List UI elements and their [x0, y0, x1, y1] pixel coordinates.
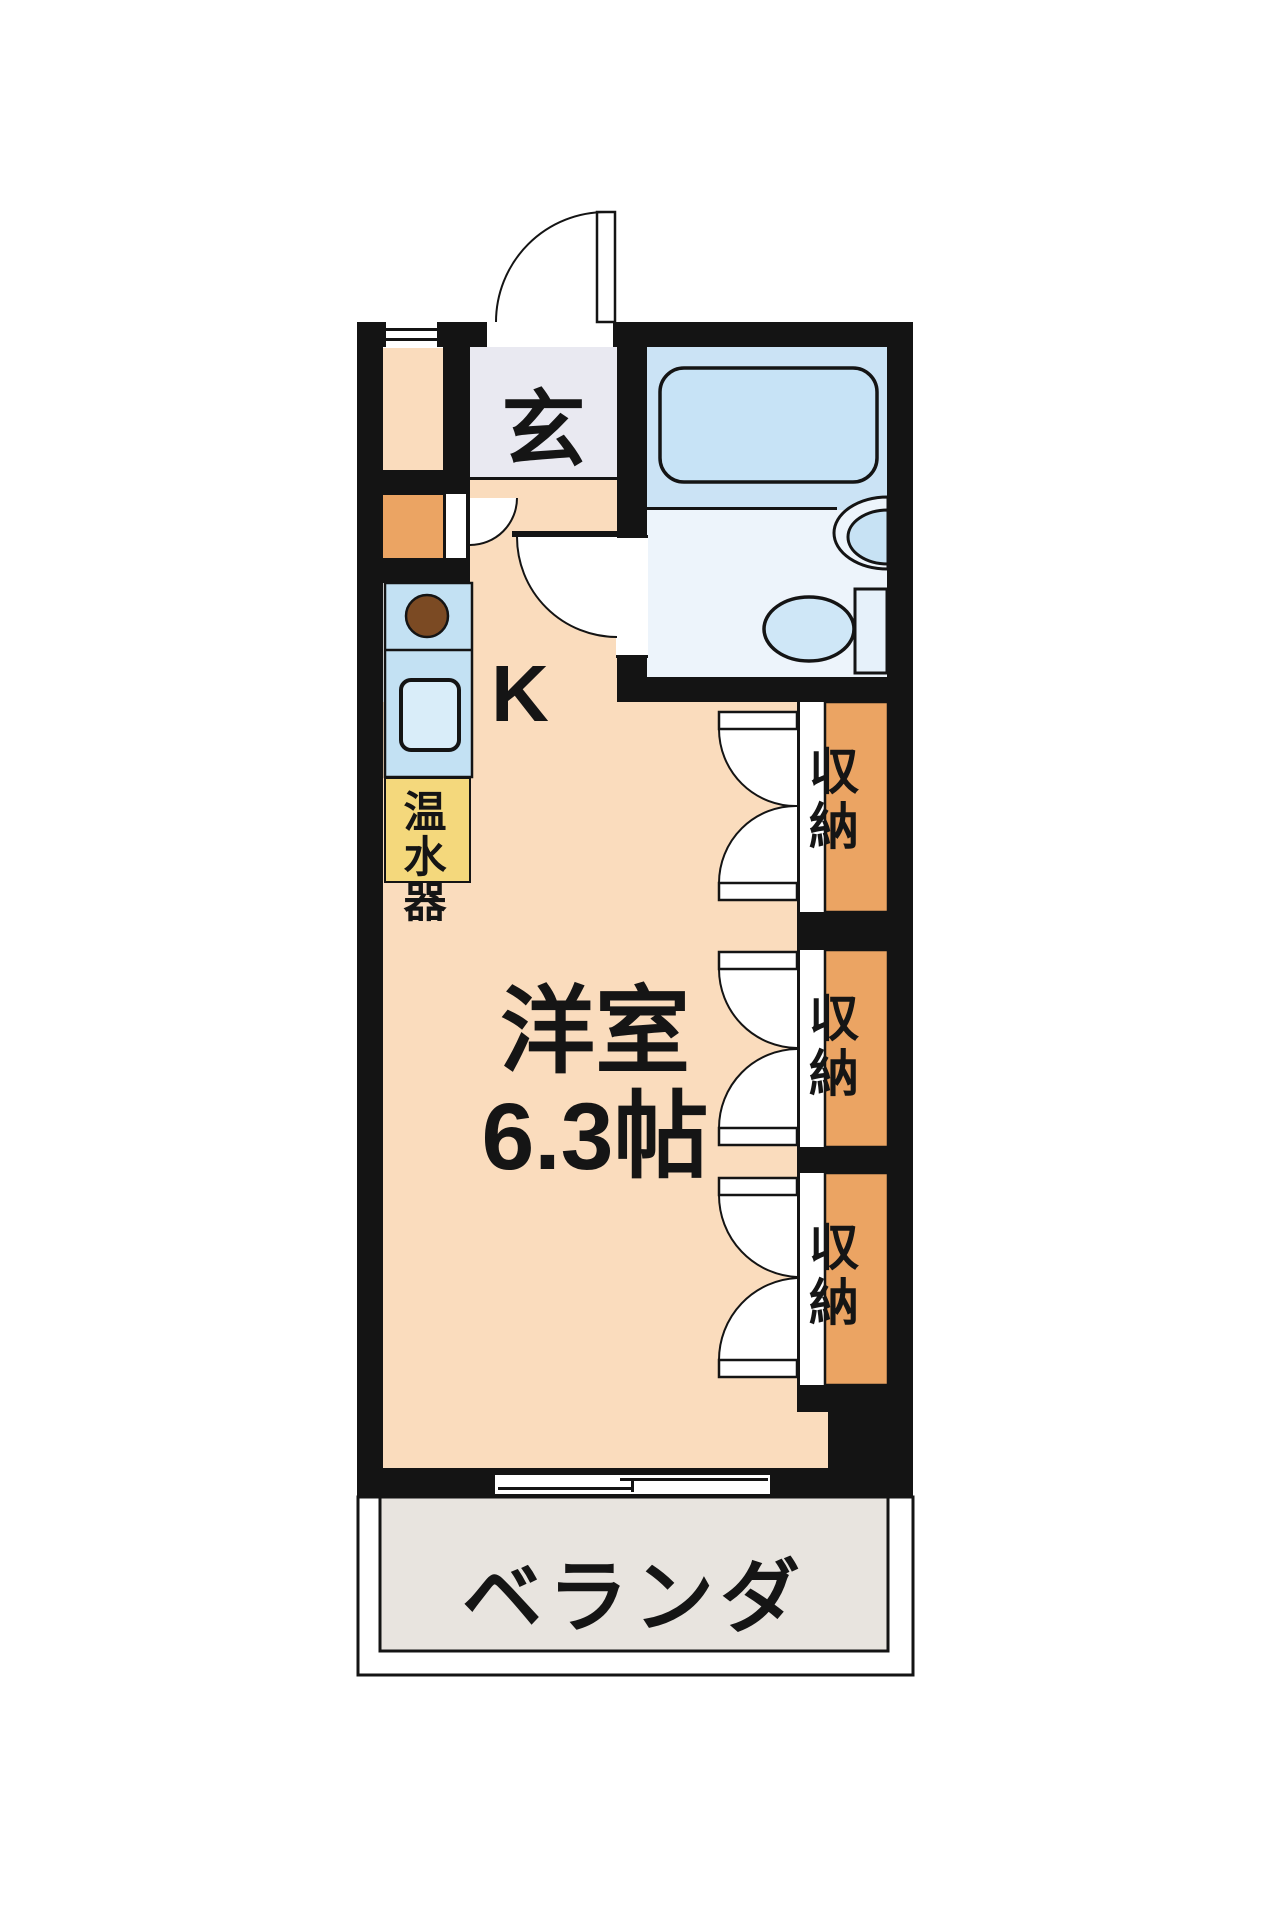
- bathroom-door-cap-top: [616, 535, 648, 538]
- wall-bathroom-bottom: [617, 677, 913, 702]
- main-room-label: 洋室 6.3帖: [383, 980, 807, 1189]
- entrance-opening: [487, 322, 613, 347]
- wall-bay-divider-1: [383, 470, 443, 495]
- main-room-size: 6.3帖: [383, 1085, 807, 1190]
- main-room-name: 洋室: [383, 980, 807, 1085]
- closet-3-label: 収納: [812, 1221, 866, 1331]
- floor-plan-page: 玄 K 洋室 6.3帖 収納 収納 収納 温水器 ベランダ: [0, 0, 1283, 1920]
- balcony-window-sash-left: [498, 1487, 634, 1490]
- wall-bottom-left: [357, 1468, 495, 1497]
- entrance-label: 玄: [470, 363, 617, 484]
- entrance-door-arc: [496, 212, 606, 322]
- bay-door-leaf: [445, 493, 467, 559]
- bathroom-door: [616, 535, 648, 658]
- water-heater-label: 温水器: [406, 789, 452, 924]
- closet-3-bottom-leaf: [719, 1360, 797, 1377]
- balcony-window-meeting-stile: [631, 1478, 634, 1492]
- kitchen-label: K: [455, 648, 585, 740]
- entrance-door-leaf: [597, 212, 615, 322]
- closet-2-label: 収納: [812, 992, 866, 1102]
- veranda-label: ベランダ: [380, 1533, 888, 1649]
- kitchen-sink: [401, 680, 459, 750]
- balcony-window-top-rail: [495, 1468, 770, 1475]
- interior-door-lintel: [512, 531, 617, 537]
- main-room-floor-notch: [797, 1412, 828, 1468]
- wall-left: [357, 322, 383, 1497]
- balcony-window-sash-right: [620, 1478, 768, 1481]
- wall-bay-divider-2: [383, 558, 443, 583]
- toilet-tank: [855, 589, 887, 673]
- left-bay-storage: [383, 495, 443, 558]
- left-bay-upper: [383, 348, 443, 470]
- closet-1-label: 収納: [812, 745, 866, 855]
- balcony-window-bottom-rail: [495, 1494, 770, 1498]
- top-window: [386, 322, 437, 347]
- bathroom-floor-divider: [647, 507, 837, 510]
- top-window-line-2: [386, 338, 437, 341]
- wall-bathroom-upper: [617, 322, 647, 535]
- top-window-line-1: [386, 328, 437, 331]
- closet-2-top-leaf: [719, 952, 797, 969]
- closet-1-top-leaf: [719, 712, 797, 729]
- toilet-bowl: [764, 597, 854, 661]
- bathtub: [660, 368, 877, 482]
- closet-1-bottom-leaf: [719, 883, 797, 900]
- bathroom-door-cap-bottom: [616, 655, 648, 658]
- stove-burner: [406, 595, 448, 637]
- wall-closet-sep-1: [797, 912, 913, 950]
- wall-closet-sep-2: [797, 1147, 913, 1173]
- wall-right: [887, 322, 913, 1497]
